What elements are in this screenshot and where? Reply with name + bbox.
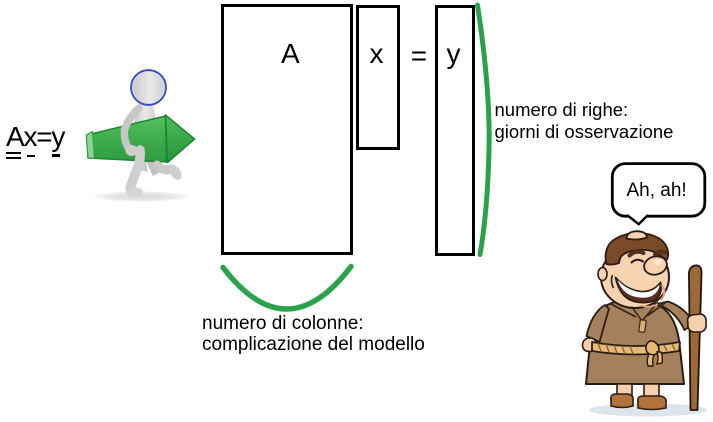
svg-text:Ah, ah!: Ah, ah! bbox=[627, 180, 687, 201]
